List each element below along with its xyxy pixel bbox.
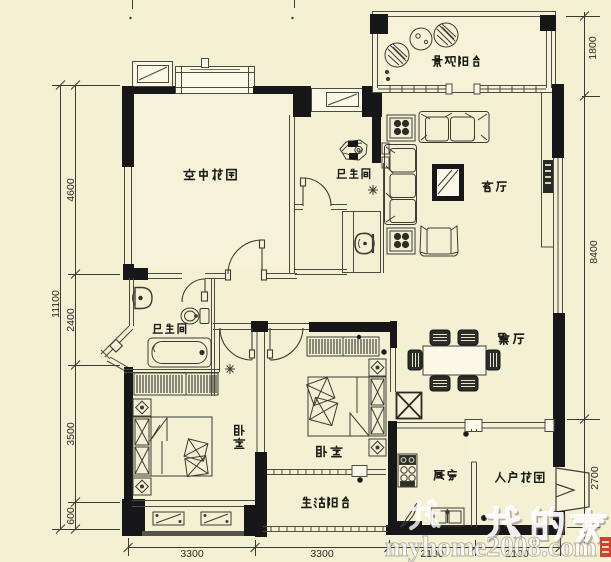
svg-text:11100: 11100 [50, 290, 62, 318]
svg-text:2400: 2400 [65, 308, 77, 332]
svg-text:8400: 8400 [588, 240, 600, 264]
svg-text:2700: 2700 [589, 466, 601, 490]
svg-text:myhome2008.com: myhome2008.com [385, 532, 597, 562]
svg-text:4600: 4600 [65, 178, 77, 202]
svg-text:1800: 1800 [587, 36, 599, 60]
svg-text:3500: 3500 [65, 422, 77, 446]
svg-text:3300: 3300 [310, 548, 334, 560]
svg-text:3300: 3300 [180, 548, 204, 560]
svg-text:600: 600 [65, 507, 77, 525]
